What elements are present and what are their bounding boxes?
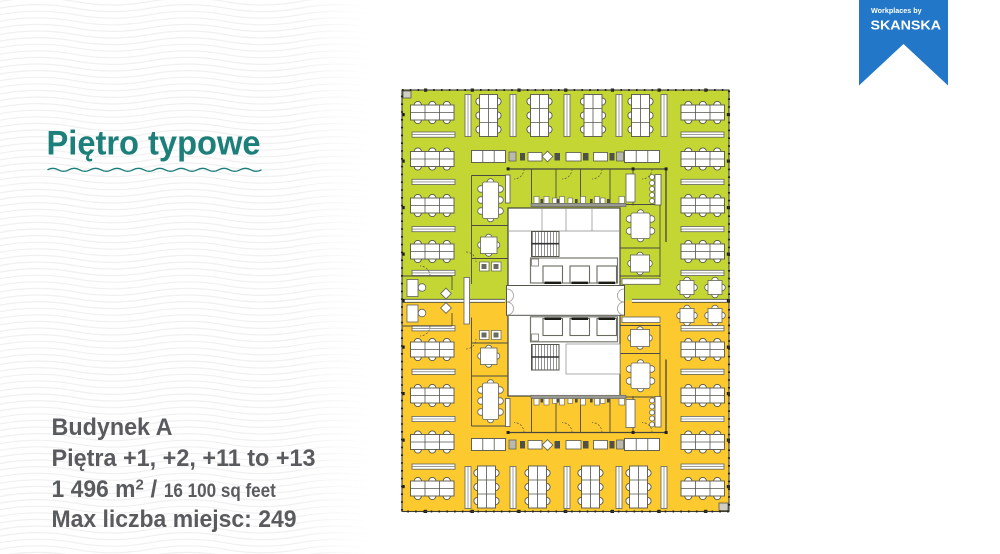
svg-text:Piętra +1, +2, +11 to +13: Piętra +1, +2, +11 to +13 (52, 445, 316, 472)
svg-text:Max liczba miejsc: 249: Max liczba miejsc: 249 (52, 506, 297, 533)
svg-text:Piętro typowe: Piętro typowe (47, 125, 261, 163)
svg-text:SKANSKA: SKANSKA (871, 18, 942, 33)
svg-text:Budynek A: Budynek A (52, 414, 173, 441)
svg-text:1 496 m2 / 16 100 sq feet: 1 496 m2 / 16 100 sq feet (52, 476, 277, 503)
svg-text:Workplaces by: Workplaces by (871, 6, 922, 15)
